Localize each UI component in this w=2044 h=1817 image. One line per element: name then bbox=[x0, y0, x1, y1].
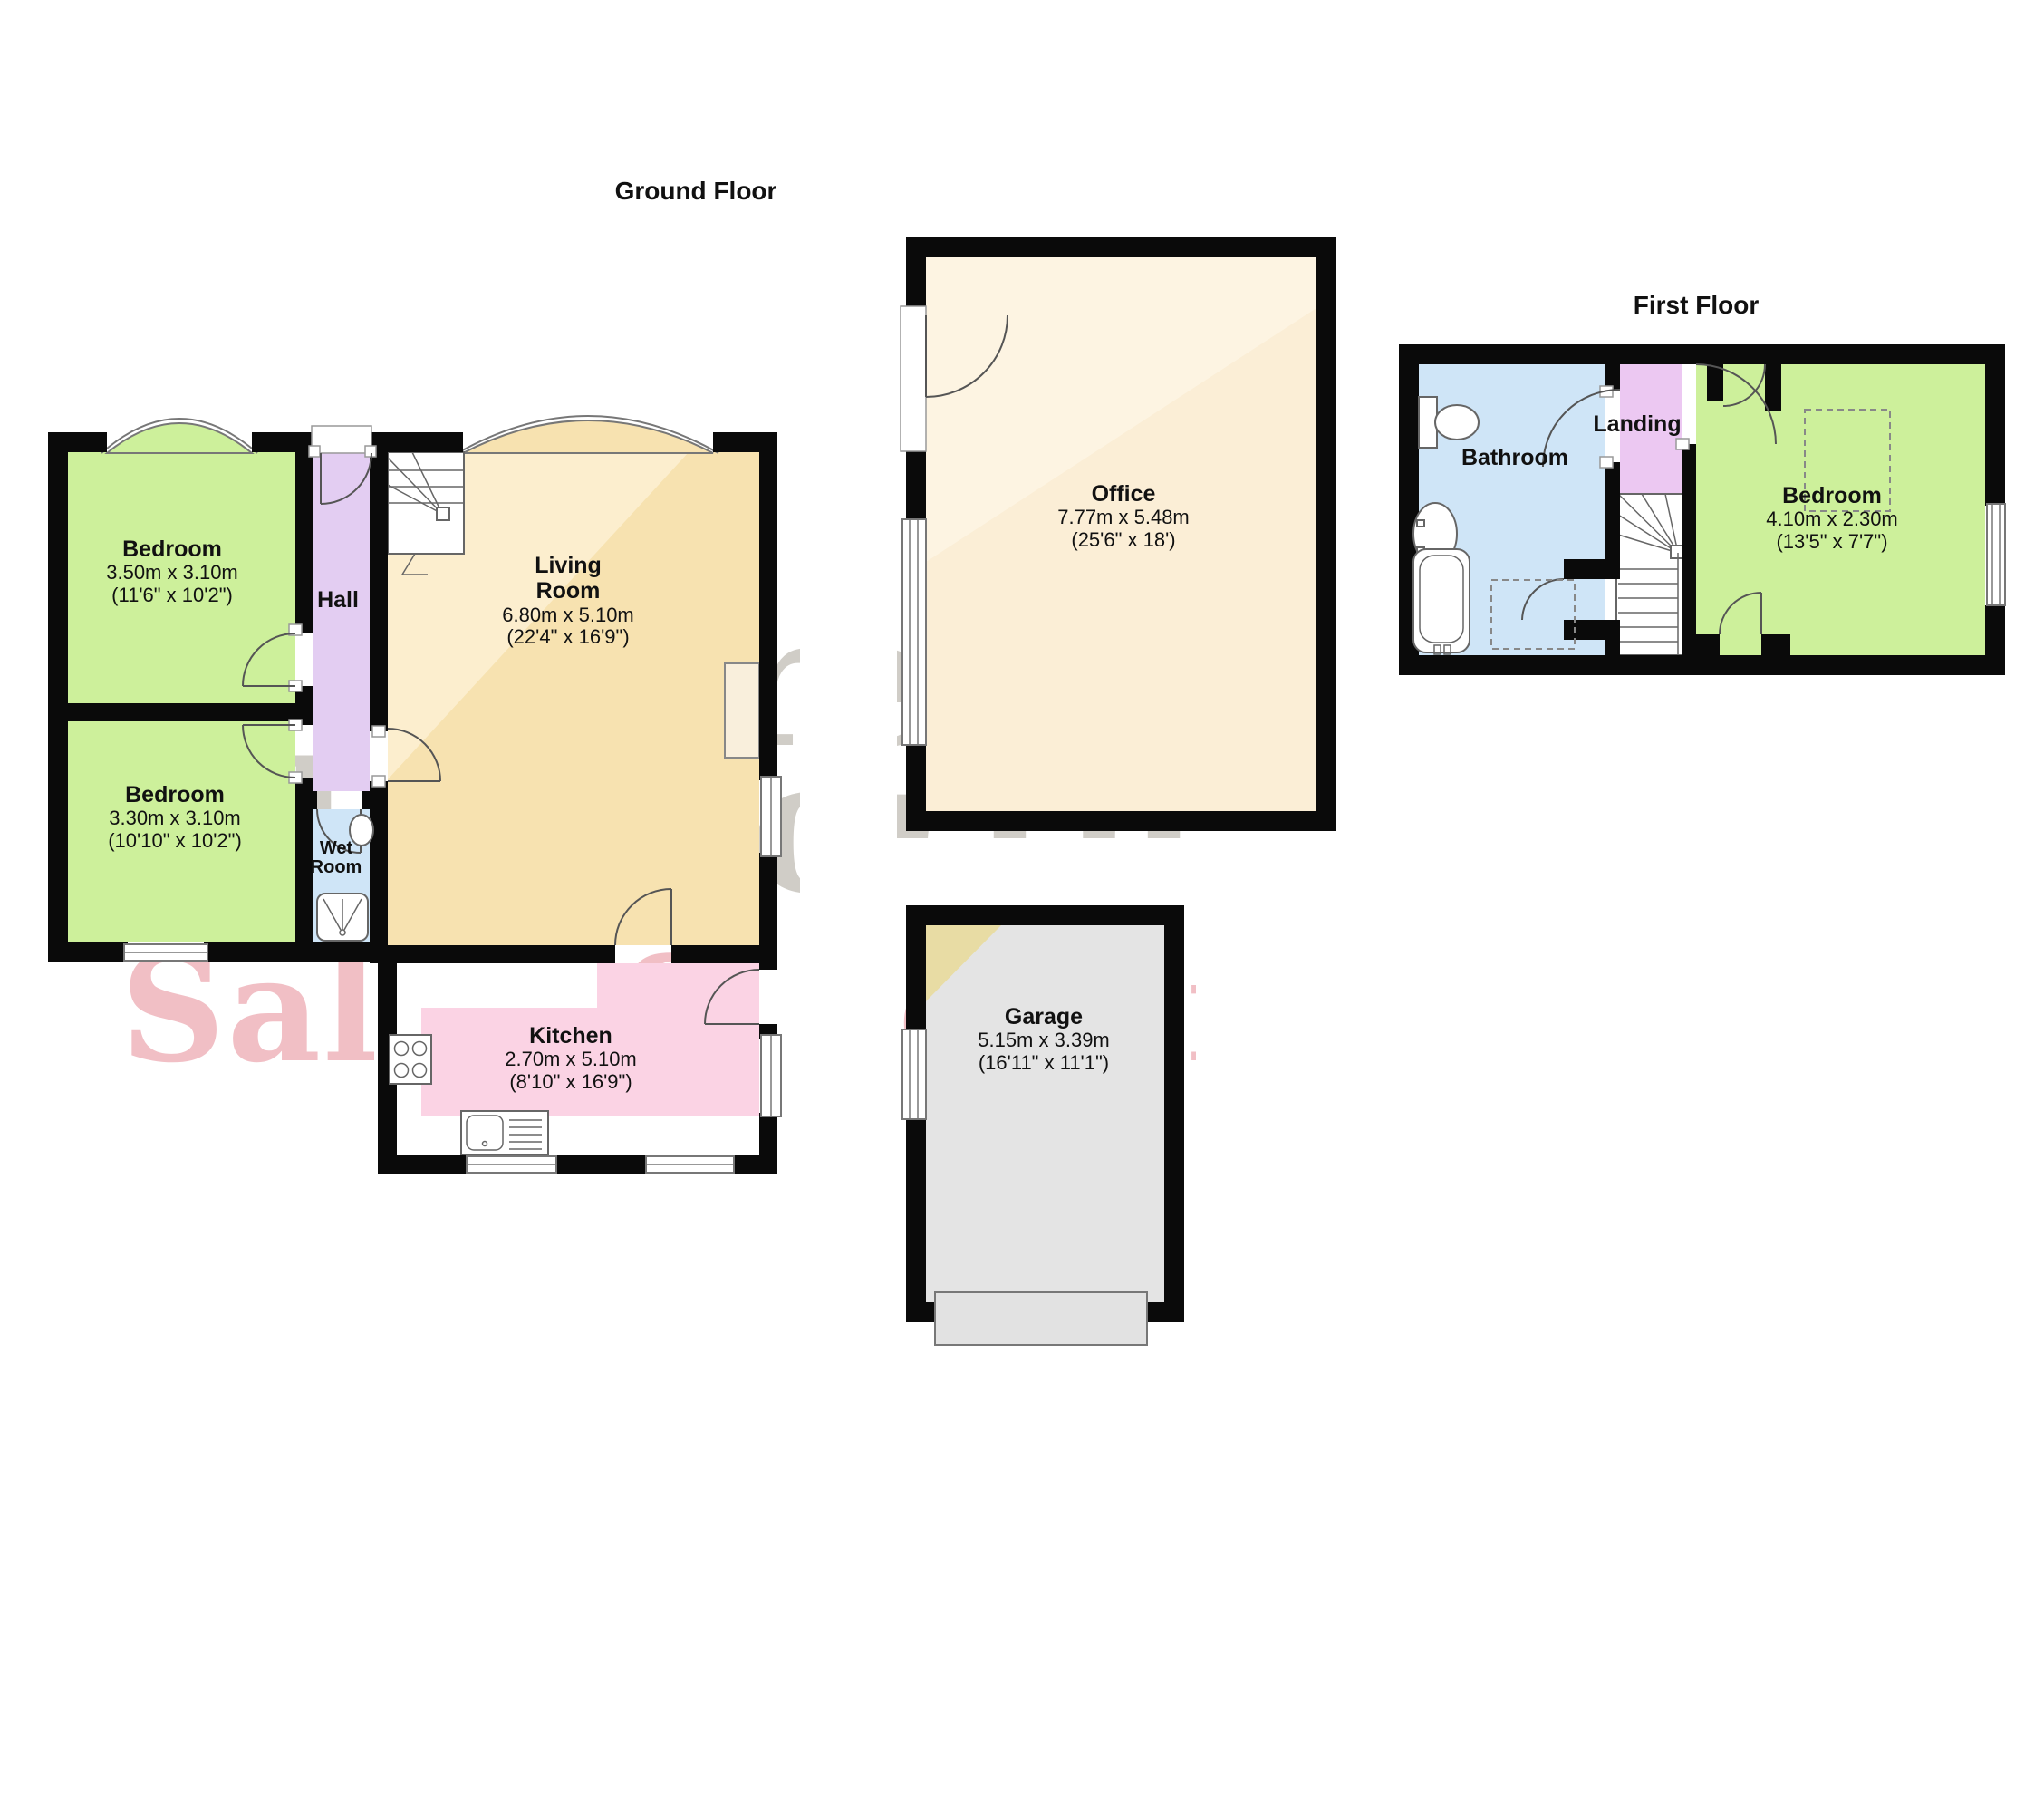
room-dims-imperial: (25'6" x 18') bbox=[1057, 529, 1190, 552]
room-dims-metric: 6.80m x 5.10m bbox=[502, 604, 634, 626]
room-dims-imperial: (8'10" x 16'9") bbox=[505, 1071, 637, 1094]
bedroom3-label: Bedroom 4.10m x 2.30m (13'5" x 7'7") bbox=[1766, 483, 1898, 554]
room-name: Bedroom bbox=[1766, 483, 1898, 508]
living-room-label: Living Room 6.80m x 5.10m (22'4" x 16'9"… bbox=[502, 553, 634, 649]
room-dims-imperial: (10'10" x 10'2") bbox=[108, 830, 242, 853]
first-floor-room-fills bbox=[1392, 337, 2017, 683]
bedroom2-label: Bedroom 3.30m x 3.10m (10'10" x 10'2") bbox=[108, 782, 242, 853]
room-name: Wet Room bbox=[311, 839, 362, 877]
room-dims-imperial: (22'4" x 16'9") bbox=[502, 626, 634, 649]
room-dims-imperial: (16'11" x 11'1") bbox=[978, 1052, 1110, 1075]
kitchen-label: Kitchen 2.70m x 5.10m (8'10" x 16'9") bbox=[505, 1023, 637, 1094]
bedroom1-label: Bedroom 3.50m x 3.10m (11'6" x 10'2") bbox=[106, 536, 238, 607]
room-dims-metric: 3.50m x 3.10m bbox=[106, 562, 238, 585]
room-name: Garage bbox=[978, 1004, 1110, 1029]
first-floor-plan bbox=[1392, 337, 2017, 683]
garage-room-fill bbox=[897, 899, 1196, 1352]
room-name: Hall bbox=[317, 587, 359, 613]
wet-room-label: Wet Room bbox=[311, 839, 362, 877]
room-name: Living Room bbox=[502, 553, 634, 604]
room-name: Kitchen bbox=[505, 1023, 637, 1049]
room-name: Bedroom bbox=[108, 782, 242, 807]
hall-label: Hall bbox=[317, 587, 359, 613]
room-dims-metric: 4.10m x 2.30m bbox=[1766, 508, 1898, 531]
room-name: Bedroom bbox=[106, 536, 238, 562]
garage-label: Garage 5.15m x 3.39m (16'11" x 11'1") bbox=[978, 1004, 1110, 1075]
landing-label: Landing bbox=[1593, 411, 1681, 437]
floorplan-page: Farrell Heyworth Sales & Lettings bbox=[0, 0, 2044, 1817]
room-dims-imperial: (11'6" x 10'2") bbox=[106, 585, 238, 607]
room-name: Landing bbox=[1593, 411, 1681, 437]
room-name: Bathroom bbox=[1461, 445, 1568, 470]
ground-floor-title: Ground Floor bbox=[615, 177, 777, 206]
first-floor-title: First Floor bbox=[1634, 291, 1759, 320]
room-dims-imperial: (13'5" x 7'7") bbox=[1766, 531, 1898, 554]
room-dims-metric: 5.15m x 3.39m bbox=[978, 1029, 1110, 1052]
bathroom-label: Bathroom bbox=[1461, 445, 1568, 470]
garage-plan: Sales & Lettings bbox=[897, 899, 1196, 1352]
room-dims-metric: 7.77m x 5.48m bbox=[1057, 507, 1190, 529]
room-dims-metric: 3.30m x 3.10m bbox=[108, 807, 242, 830]
room-dims-metric: 2.70m x 5.10m bbox=[505, 1049, 637, 1071]
room-name: Office bbox=[1057, 481, 1190, 507]
office-label: Office 7.77m x 5.48m (25'6" x 18') bbox=[1057, 481, 1190, 552]
